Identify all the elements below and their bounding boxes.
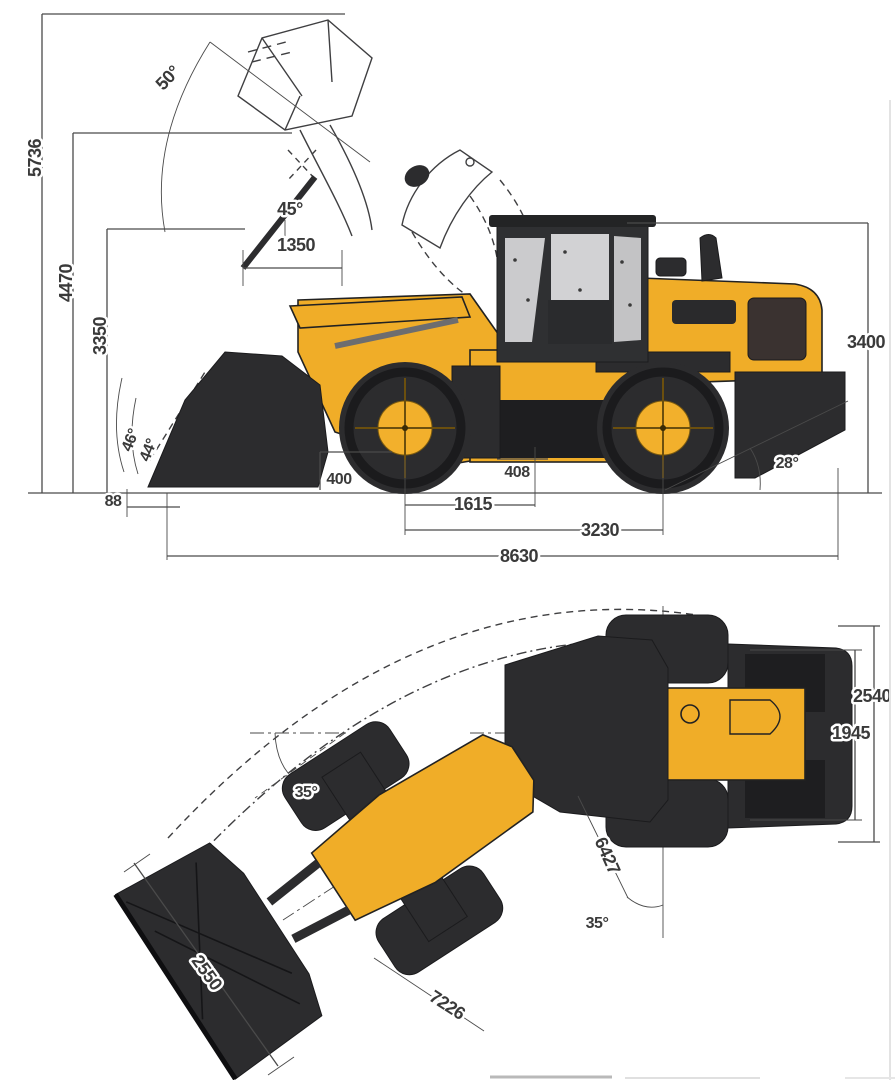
dim-overall-height-raised: 5736 — [25, 138, 45, 177]
dim-axle-to-hitch: 1615 — [454, 494, 493, 514]
cab — [489, 215, 656, 362]
bucket-side — [148, 352, 328, 487]
dim-rollback-angle-top: 50° — [152, 61, 184, 94]
dim-departure-angle: 28° — [776, 455, 799, 472]
dim-articulation-lower: 35° — [586, 915, 609, 932]
top-view: 2540 1945 35° 35° 6427 7226 2550 — [112, 606, 891, 1080]
raised-bucket-outline — [238, 20, 537, 300]
side-view: 5736 4470 3350 1350 45° 50° 46° 44° 88 4… — [25, 14, 886, 566]
bucket-top — [116, 830, 336, 1079]
dim-width-over-tires: 1945 — [832, 723, 871, 743]
dim-digging-depth: 88 — [105, 493, 122, 510]
dim-carry-clearance: 400 — [326, 471, 352, 488]
grille — [748, 298, 806, 360]
dim-overall-length: 8630 — [500, 546, 539, 566]
dim-dump-clearance: 3350 — [90, 316, 110, 355]
dim-dump-angle: 45° — [277, 199, 303, 219]
exhaust-pipe — [700, 235, 722, 282]
dim-wheelbase: 3230 — [581, 520, 620, 540]
dim-articulation-upper: 35° — [295, 784, 318, 801]
dim-overall-width: 2540 — [853, 686, 892, 706]
loader-dimension-diagram: 5736 4470 3350 1350 45° 50° 46° 44° 88 4… — [0, 0, 895, 1080]
diagram-canvas: 5736 4470 3350 1350 45° 50° 46° 44° 88 4… — [0, 0, 895, 1080]
dim-hinge-pin-height: 4470 — [56, 263, 76, 302]
loader-side-illustration — [148, 177, 845, 494]
dim-rollback-44: 44° — [137, 437, 161, 465]
dim-turn-radius-bucket: 7226 — [426, 986, 469, 1024]
brand-logo — [672, 300, 736, 324]
dim-ground-clearance: 408 — [504, 464, 530, 481]
air-cleaner — [656, 258, 686, 276]
dim-cab-height: 3400 — [847, 332, 886, 352]
dim-dump-reach: 1350 — [277, 235, 316, 255]
